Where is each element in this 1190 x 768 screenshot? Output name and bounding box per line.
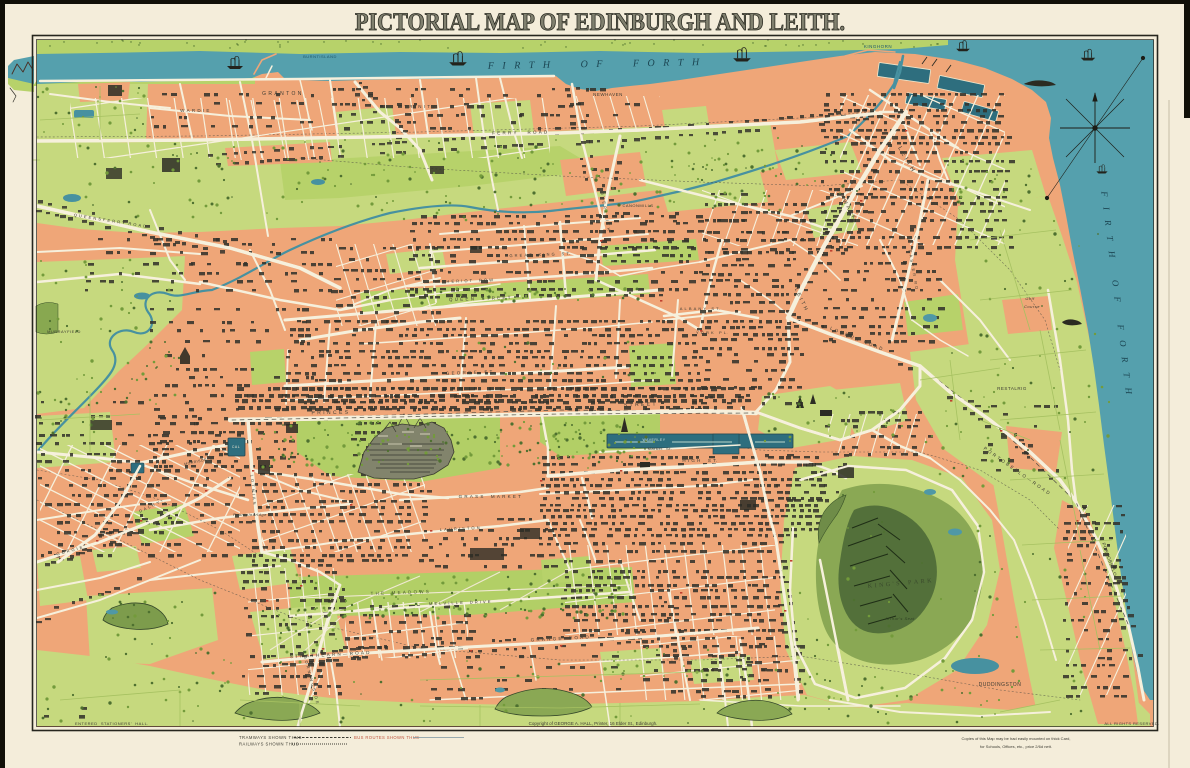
svg-text:ALL RIGHTS RESERVED.: ALL RIGHTS RESERVED. xyxy=(1104,721,1159,726)
svg-text:RAILWAYS SHOWN THUS: RAILWAYS SHOWN THUS xyxy=(239,742,299,747)
svg-text:DUDDINGSTON: DUDDINGSTON xyxy=(979,682,1022,688)
svg-text:ENTERED STATIONERS' HALL.: ENTERED STATIONERS' HALL. xyxy=(75,721,149,726)
svg-text:Copies of this Map may be had: Copies of this Map may be had easily mou… xyxy=(962,736,1071,741)
svg-text:NEWHAVEN: NEWHAVEN xyxy=(593,92,623,97)
svg-text:A L B A N Y S T.: A L B A N Y S T. xyxy=(680,306,721,311)
svg-text:Golf: Golf xyxy=(1025,296,1035,301)
svg-text:Fountainbridge: Fountainbridge xyxy=(233,512,267,517)
svg-text:CAL: CAL xyxy=(232,445,240,449)
svg-text:for Schools, Offices, etc., pr: for Schools, Offices, etc., price 2/6d n… xyxy=(980,744,1052,749)
svg-text:RESTALRIG: RESTALRIG xyxy=(997,386,1027,391)
svg-text:PICTORIAL MAP OF EDINBURGH AND: PICTORIAL MAP OF EDINBURGH AND LEITH. xyxy=(355,9,845,36)
svg-text:G R A S S M A R K E T: G R A S S M A R K E T xyxy=(459,494,522,499)
svg-text:Market St.: Market St. xyxy=(648,446,673,451)
svg-text:KINGHORN: KINGHORN xyxy=(864,44,892,49)
svg-text:TRAMWAYS SHOWN THUS: TRAMWAYS SHOWN THUS xyxy=(239,735,302,740)
svg-text:Copyright of GEORGE A. HALL, P: Copyright of GEORGE A. HALL, Printer, 16… xyxy=(529,721,658,726)
svg-text:Course: Course xyxy=(1024,304,1040,309)
svg-text:BURNTISLAND: BURNTISLAND xyxy=(303,54,337,59)
svg-text:Arthur's Seat: Arthur's Seat xyxy=(884,616,915,621)
svg-text:H I G H S T.: H I G H S T. xyxy=(682,458,717,463)
svg-text:MURRAYFIELD: MURRAYFIELD xyxy=(47,329,81,334)
svg-text:P R I N C E S: P R I N C E S xyxy=(311,410,348,417)
svg-text:Y O R K P L.: Y O R K P L. xyxy=(696,330,728,335)
svg-text:S T R E E T: S T R E E T xyxy=(624,401,656,408)
svg-text:T R I N I T Y: T R I N I T Y xyxy=(404,104,436,109)
svg-text:WAVERLEY: WAVERLEY xyxy=(642,438,665,442)
svg-text:W A R D I E: W A R D I E xyxy=(180,108,210,113)
svg-text:BUS ROUTES SHOWN THUS: BUS ROUTES SHOWN THUS xyxy=(354,735,419,740)
svg-text:F E R R Y R O A D: F E R R Y R O A D xyxy=(492,130,548,136)
svg-text:CANONMILLS: CANONMILLS xyxy=(622,203,653,208)
svg-text:G R A N T O N: G R A N T O N xyxy=(262,91,302,97)
